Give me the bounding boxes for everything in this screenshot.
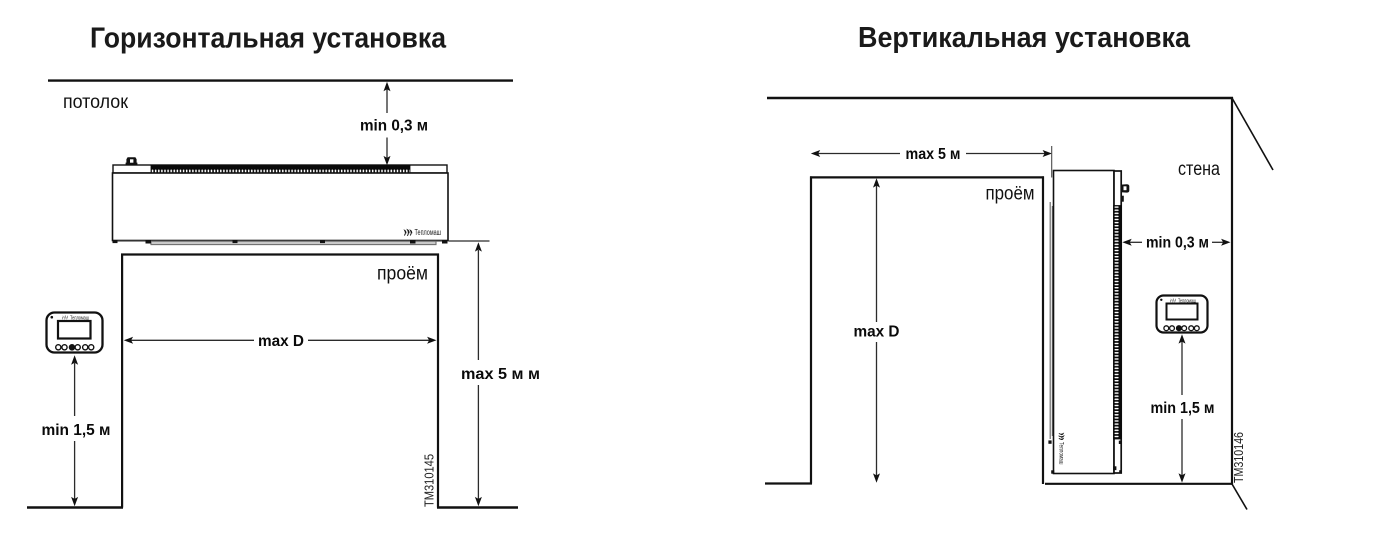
svg-text:проём: проём [377,264,428,285]
svg-text:min 0,3 м: min 0,3 м [360,118,428,135]
svg-text:min 1,5 м: min 1,5 м [42,422,111,439]
svg-text:стена: стена [1178,159,1220,180]
svg-text:max 5 м м: max 5 м м [461,366,540,383]
svg-text:проём: проём [986,184,1035,205]
svg-text:min 0,3 м: min 0,3 м [1146,234,1209,251]
svg-text:Горизонтальная установка: Горизонтальная установка [90,23,447,55]
svg-text:max D: max D [258,333,304,350]
svg-text:max 5 м: max 5 м [906,146,961,163]
svg-text:потолок: потолок [63,92,129,113]
svg-text:min 1,5 м: min 1,5 м [1151,400,1215,417]
svg-text:max D: max D [854,324,900,341]
svg-text:Вертикальная установка: Вертикальная установка [858,22,1191,54]
svg-text:TM310146: TM310146 [1232,432,1246,483]
svg-text:TM310145: TM310145 [423,454,437,507]
